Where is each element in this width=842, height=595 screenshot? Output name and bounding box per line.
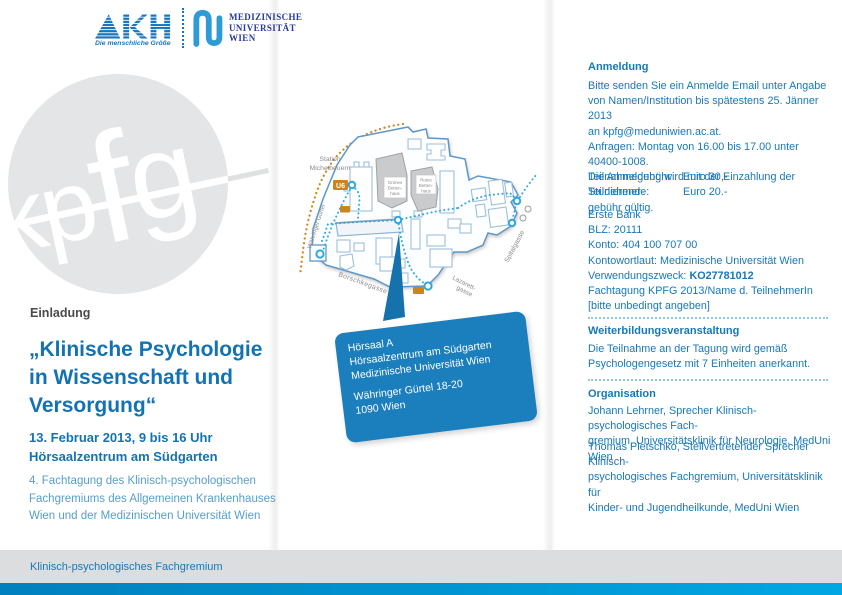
heading-weiterbildung: Weiterbildungsveranstaltung <box>588 324 739 339</box>
zweck-label: Verwendungszweck: <box>588 270 689 282</box>
u6-badge-label: U6 <box>336 183 345 190</box>
muw-line1: MEDIZINISCHE <box>229 12 302 23</box>
bank-details: Erste Bank BLZ: 20111 Konto: 404 100 707… <box>588 208 804 269</box>
muw-line3: WIEN <box>229 33 302 44</box>
fee-row: Teilnahmegebühr Euro 30,- <box>588 170 834 185</box>
gruenes-label-2: Betten- <box>388 186 403 191</box>
street-spitalgasse: Spitalgasse <box>504 229 527 264</box>
campus-map: Grünes Betten- haus Rotes Betten- haus <box>280 123 572 328</box>
rotes-label-1: Rotes <box>420 178 432 183</box>
fee-label: Teilnahmegebühr <box>588 170 683 185</box>
stop-icon-1 <box>520 215 526 221</box>
meduni-wien-logo-icon <box>191 8 223 48</box>
fee-row: Studierende: Euro 20.- <box>588 185 834 200</box>
fee-value: Euro 30,- <box>683 170 727 185</box>
rotes-label-3: haus <box>421 189 431 194</box>
fee-value: Euro 20.- <box>683 185 727 200</box>
heading-anmeldung: Anmeldung <box>588 60 649 75</box>
stop-icon-2 <box>525 206 531 212</box>
zweck-line: Verwendungszweck: KO27781012 <box>588 269 754 284</box>
tram-stop-badge <box>340 206 350 213</box>
station-label-1: Station <box>319 156 340 163</box>
akh-tagline: Die menschliche Größe <box>95 40 171 47</box>
gruenes-label-1: Grünes <box>388 180 403 185</box>
weiterbildung-text: Die Teilnahme an der Tagung wird gemäß P… <box>588 342 810 372</box>
meduni-wien-wordmark: MEDIZINISCHE UNIVERSITÄT WIEN <box>229 8 302 44</box>
fee-label: Studierende: <box>588 185 683 200</box>
dotted-separator-1 <box>588 317 828 319</box>
station-label-2: Michelbeuern <box>310 165 351 172</box>
logo-divider <box>182 8 184 48</box>
event-title: „Klinische Psychologie in Wissenschaft u… <box>29 336 279 420</box>
flyer-page: MEDIZINISCHE UNIVERSITÄT WIEN Die mensch… <box>0 0 842 595</box>
rotes-label-2: Betten- <box>419 183 434 188</box>
zweck-value: KO27781012 <box>689 270 753 282</box>
kpfg-watermark: kpfg <box>0 62 270 312</box>
fees-table: Teilnahmegebühr Euro 30,- Studierende: E… <box>588 170 834 200</box>
event-subtitle: 4. Fachtagung des Klinisch-psychologisch… <box>29 473 276 526</box>
zweck-note: Fachtagung KPFG 2013/Name d. TeilnehmerI… <box>588 284 813 314</box>
kicker-einladung: Einladung <box>30 306 90 320</box>
footer-text: Klinisch-psychologisches Fachgremium <box>30 561 223 573</box>
dotted-separator-2 <box>588 379 828 381</box>
organisation-person-2: Thomas Pletschko, Stellvertretender Spre… <box>588 440 834 516</box>
venue-callout: Hörsaal A Hörsaalzentrum am Südgarten Me… <box>334 311 538 444</box>
gruenes-label-3: haus <box>390 191 400 196</box>
bus-stop-badge <box>413 287 424 294</box>
muw-line2: UNIVERSITÄT <box>229 23 302 34</box>
footer-accent-bar <box>0 583 842 595</box>
event-datetime: 13. Februar 2013, 9 bis 16 Uhr Hörsaalze… <box>29 428 218 466</box>
akh-logo-icon <box>95 8 173 44</box>
heading-organisation: Organisation <box>588 387 656 402</box>
